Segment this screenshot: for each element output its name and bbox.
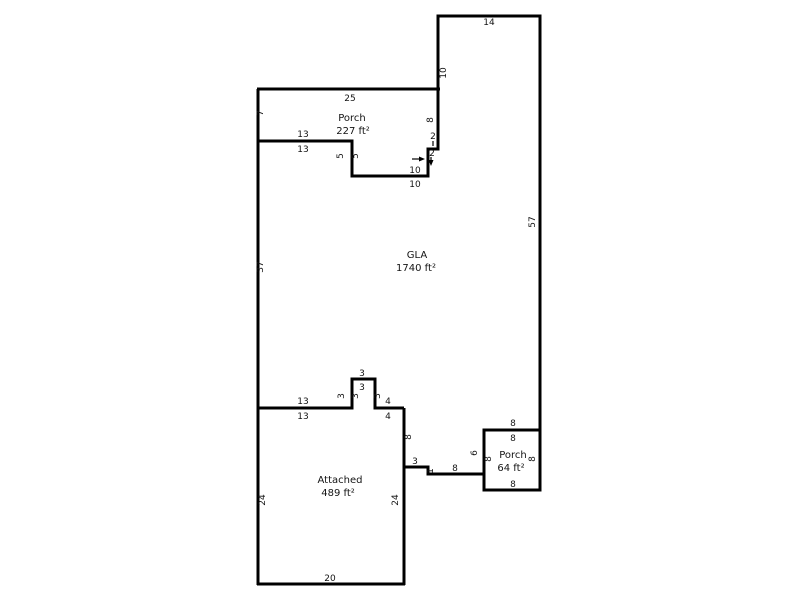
floorplan-sketch: 14 10 57 25 7 Porch 227 ft² 8 2 2 13 13 … [0,0,800,600]
wall-top-rectangle [438,16,540,430]
dim-bump3-right: 3 [373,393,383,399]
dim-top-rect-left: 10 [439,67,449,79]
dim-bottom13-below: 13 [297,412,308,422]
area-value-porch64: 64 ft² [497,463,524,474]
arrow-right-head-icon [419,157,425,162]
dim-ledge3: 3 [412,457,418,467]
dim-garage-left: 24 [258,494,268,506]
dim-top-rect-width: 14 [483,18,495,28]
area-label-porch64: Porch [499,450,527,461]
dim-left-wall: 37 [256,261,266,272]
dim-ledge8: 8 [452,464,458,474]
dim-step5-right: 5 [351,153,361,159]
dim-ledge10-above: 10 [409,166,421,176]
dim-garage-right: 24 [391,494,401,506]
dim-porch64-bottom: 8 [510,480,516,490]
area-label-gla: GLA [407,250,428,261]
wall-gla-bottom-right-step [404,467,485,474]
area-label-porch227: Porch [338,113,366,124]
dim-right-wall: 57 [528,216,538,227]
dim-bump3-left-inner: 3 [351,393,361,399]
dim-step2-horizontal: 2 [430,132,436,142]
dim-bump3-top-below: 3 [359,383,365,393]
dim-porch64-left-outer: 6 [470,450,480,456]
area-value-porch227: 227 ft² [336,126,370,137]
area-label-attached: Attached [318,475,363,486]
dim-porch227-left: 7 [256,110,266,116]
dim-bump3-top-above: 3 [359,369,365,379]
dim-bump3-left-outer: 3 [337,393,347,399]
area-value-gla: 1740 ft² [396,263,436,274]
dim-seg4-above: 4 [385,397,391,407]
dim-porch64-top-below: 8 [510,434,516,444]
dim-drop1: 1 [426,468,436,474]
dim-porch227-right: 8 [426,117,436,123]
dim-ledge13-below: 13 [297,145,308,155]
dim-step2-vertical: 2 [429,149,435,159]
area-value-attached: 489 ft² [321,488,355,499]
dim-porch227-top: 25 [344,94,355,104]
dim-ledge13-above: 13 [297,130,308,140]
dim-bottom13-above: 13 [297,397,308,407]
floorplan-canvas: 14 10 57 25 7 Porch 227 ft² 8 2 2 13 13 … [0,0,800,600]
dim-seg4-below: 4 [385,412,391,422]
dim-porch64-top-above: 8 [510,419,516,429]
dim-ledge10-below: 10 [409,180,421,190]
dim-porch64-left-inner: 8 [484,456,494,462]
dim-garage-bottom: 20 [324,574,336,584]
dim-step5-left: 5 [336,153,346,159]
dim-porch64-right-inner: 8 [528,456,538,462]
dim-drop8: 8 [404,434,414,440]
